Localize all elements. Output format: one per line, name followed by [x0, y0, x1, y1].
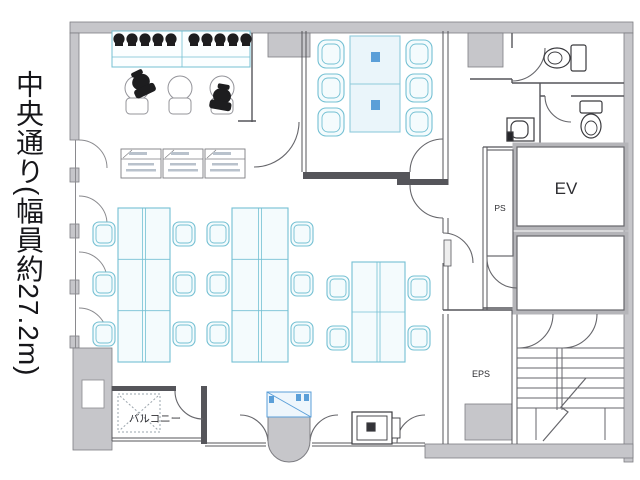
equipment-core [367, 423, 375, 431]
counter-chair-icon [141, 43, 149, 46]
cabinet-label [210, 169, 240, 172]
desk-island [118, 208, 170, 362]
counter-chair-icon [152, 33, 163, 44]
entry-mat-mark [296, 394, 301, 401]
wall-left-post [70, 280, 79, 294]
stool [126, 98, 148, 114]
wall-block-eps [465, 404, 512, 440]
label-elevator: EV [555, 179, 578, 198]
stool [169, 98, 191, 114]
counter-chair-icon [188, 33, 199, 44]
counter-chair-icon [203, 43, 211, 46]
cabinet-label [171, 152, 189, 155]
entry-mat [267, 392, 311, 417]
wall-panel [444, 240, 451, 266]
sink-cabinet [507, 132, 513, 141]
toilet-tank [571, 45, 586, 71]
toilet-bowl-inner [585, 121, 597, 135]
counter-chair-icon [201, 33, 212, 44]
cabinet-label [168, 169, 198, 172]
wall-balcony-top [112, 386, 176, 391]
label-pipe-space: PS [494, 203, 506, 213]
counter-chair-icon [115, 43, 123, 46]
counter-chair-icon [240, 33, 251, 44]
cabinet-label [213, 152, 231, 155]
desk-island [232, 208, 288, 362]
counter-chair-icon [229, 43, 237, 46]
counter-chair-icon [113, 33, 124, 44]
cabinet-label [128, 163, 154, 166]
entry-mat-mark [304, 394, 309, 401]
counter-chair-icon [242, 43, 250, 46]
wall-left-post [70, 224, 79, 238]
counter-chair-icon [167, 43, 175, 46]
cabinet-label [212, 163, 238, 166]
cabinet-label [126, 169, 156, 172]
counter-chair-icon [214, 33, 225, 44]
wall-office-stub [397, 179, 448, 185]
meeting-room-furniture [318, 36, 432, 136]
counter-chair-icon [128, 43, 136, 46]
wall-left-post [70, 168, 79, 182]
cabinet-label [170, 163, 196, 166]
counter-chair-icon [165, 33, 176, 44]
label-eps: EPS [472, 369, 490, 379]
meeting-table-unit [371, 100, 380, 110]
counter-chair-icon [154, 43, 162, 46]
floor-plan: EV PS EPS バルコニー [0, 0, 640, 480]
entry-mat-mark [269, 396, 274, 403]
floorplan-page: 中央通り(幅員約27.2m) [0, 0, 640, 480]
label-balcony: バルコニー [129, 413, 181, 425]
wall-meeting-bottom [303, 172, 410, 179]
wall-left-upper [70, 33, 79, 140]
counter-chair-icon [227, 33, 238, 44]
wall-balcony-right [201, 386, 207, 444]
toilet-tank [580, 101, 602, 113]
entrance-porch [268, 410, 310, 462]
equipment-side [392, 418, 400, 438]
counter-chair-icon [216, 43, 224, 46]
counter-chair-icon [139, 33, 150, 44]
wall-notch-top-right [468, 33, 503, 67]
wall-niche [82, 380, 104, 408]
wall-left-post [70, 336, 79, 348]
cabinets [121, 149, 245, 178]
wall-bottom-right [425, 444, 633, 458]
cabinet-label [129, 152, 147, 155]
machine-room [517, 236, 624, 310]
counter-chair-icon [126, 33, 137, 44]
meeting-table-unit [371, 52, 380, 62]
counter-chair-icon [190, 43, 198, 46]
round-table [168, 76, 192, 100]
wall-notch-top-center [268, 33, 310, 57]
toilet-bowl-inner [548, 52, 562, 64]
